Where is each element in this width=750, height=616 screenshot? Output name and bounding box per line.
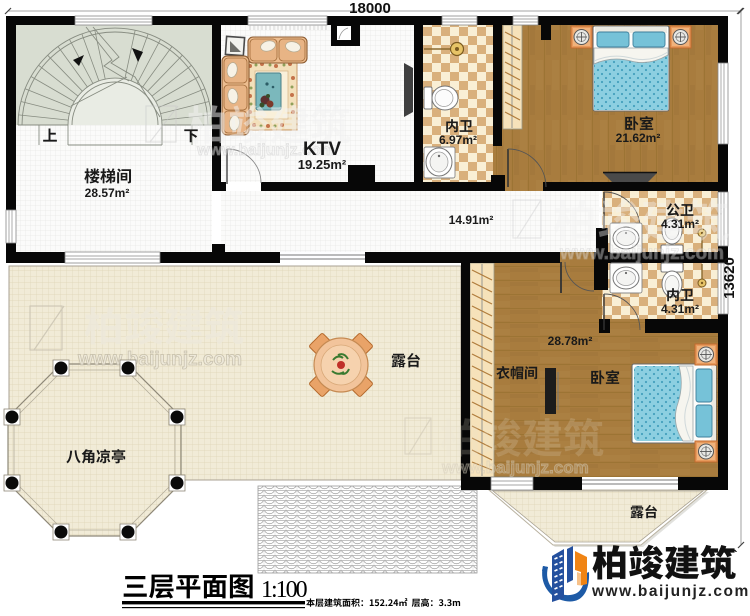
svg-text:14.91m²: 14.91m² — [449, 213, 494, 227]
svg-text:28.78m²: 28.78m² — [548, 334, 593, 348]
svg-text:28.57m²: 28.57m² — [85, 186, 130, 200]
svg-text:1:100: 1:100 — [261, 577, 308, 603]
svg-text:www.baijunjz.com: www.baijunjz.com — [77, 349, 242, 370]
svg-text:18000: 18000 — [349, 0, 391, 17]
svg-text:21.62m²: 21.62m² — [616, 131, 661, 145]
svg-text:www.baijunjz.com: www.baijunjz.com — [559, 243, 724, 264]
svg-text:www.baijunjz.com: www.baijunjz.com — [591, 583, 750, 600]
svg-text:www.baijunjz.com: www.baijunjz.com — [441, 458, 589, 477]
svg-text:4.31m²: 4.31m² — [661, 217, 699, 231]
svg-text:19.25m²: 19.25m² — [298, 157, 347, 172]
svg-text:6.97m²: 6.97m² — [439, 133, 477, 147]
svg-text:`: ` — [733, 547, 738, 563]
svg-text:4.31m²: 4.31m² — [661, 302, 699, 316]
svg-text:13620: 13620 — [721, 257, 738, 299]
